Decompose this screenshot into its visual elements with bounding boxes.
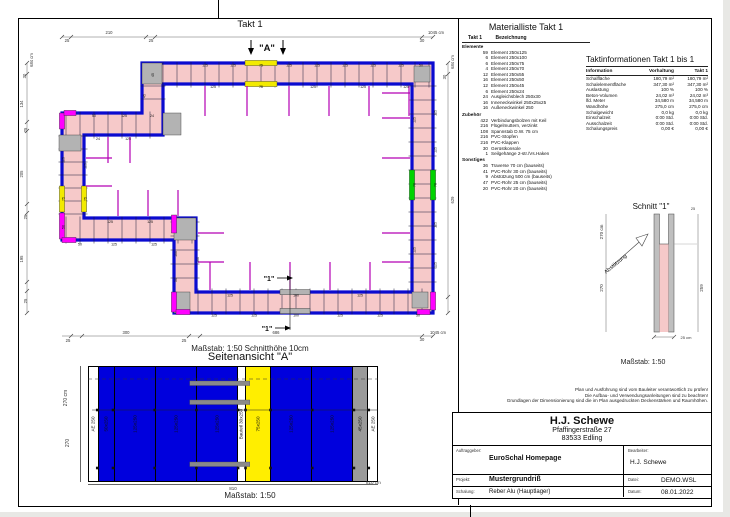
schnitt-scale: Maßstab: 1:50 xyxy=(621,359,666,366)
side-panel-label: 125x250 xyxy=(173,415,178,433)
plan-text: 125 xyxy=(357,293,363,297)
side-panel: 50x250 xyxy=(99,367,115,481)
wall-element xyxy=(174,218,196,240)
datei-value: DEMO.WSL xyxy=(661,477,696,484)
plan-text: 134 xyxy=(19,100,24,108)
plan-text: 125 xyxy=(125,137,131,141)
plan-text: 45 xyxy=(151,73,155,77)
plan-text: 50 xyxy=(78,242,82,246)
material-row: 16Außeneckwinkel 250 xyxy=(462,105,590,111)
wall-element xyxy=(412,292,428,308)
plan-text: 50 xyxy=(92,114,96,118)
brace-label: Abstützung xyxy=(603,253,628,275)
plan-text: 45 xyxy=(142,94,146,98)
takt-info-header: Information Vorhaltung Takt 1 xyxy=(586,68,708,76)
material-list-col1: Takt 1 xyxy=(468,35,482,41)
plan-text: 684 cm xyxy=(450,55,455,69)
plan-text: 125 xyxy=(286,63,292,67)
plan-text: 125 xyxy=(251,313,257,317)
plan-text: 25 xyxy=(23,214,28,219)
section-a-marker: "A" xyxy=(259,43,275,54)
plan-text: 125 xyxy=(210,85,216,89)
plan-text: 125 xyxy=(227,293,233,297)
marker-a-arrow-head xyxy=(280,48,286,55)
material-list-header: Takt 1 Bezeichnung xyxy=(462,35,590,43)
material-list-title: Materialliste Takt 1 xyxy=(462,22,590,32)
wall-element xyxy=(430,292,435,310)
side-panel-label: 125x250 xyxy=(288,415,293,433)
takt-info-table: Taktinformationen Takt 1 bis 1 Informati… xyxy=(586,55,708,132)
plan-text: 125 xyxy=(412,117,416,123)
wall-element xyxy=(62,237,76,242)
material-qty: 20 xyxy=(462,186,488,192)
side-view-dim-line-left xyxy=(80,366,81,482)
side-panel-label: AE 250 xyxy=(91,416,96,431)
schnitt-dim-25: 25 xyxy=(691,207,695,211)
disclaimer-text: Plan und Ausführung sind vom Bauleiter v… xyxy=(458,387,708,404)
plan-text: 125 xyxy=(337,313,343,317)
datum-value: 08.01.2022 xyxy=(661,489,694,496)
plan-text: 24 xyxy=(96,137,100,141)
marker-a-arrow-head xyxy=(248,48,254,55)
section-1-marker-top: "1" xyxy=(264,276,275,283)
plan-text: 686 xyxy=(273,330,281,335)
plan-text: 100 xyxy=(293,313,299,317)
wall-element xyxy=(414,66,430,82)
plan-text: 125 xyxy=(433,110,437,116)
brace-arrow-head xyxy=(636,234,648,246)
disclaimer-line: Grundlagen der Dimensionierung sind die … xyxy=(458,398,708,404)
side-panel: Bauteil 30x250 xyxy=(238,367,246,481)
plan-text: 125 xyxy=(202,63,208,67)
plan-text: 24 xyxy=(150,114,154,118)
side-panel: 125x250 xyxy=(197,367,238,481)
side-panel-label: AE 250 xyxy=(370,416,375,431)
material-name: Außeneckwinkel 250 xyxy=(491,105,590,111)
wall-element xyxy=(64,110,76,115)
takt-info-body: Schalfläche180,79 m²180,79 m²Schalelemen… xyxy=(586,76,708,132)
material-list: Materialliste Takt 1 Takt 1 Bezeichnung … xyxy=(462,22,590,191)
takt-info-col-vorhaltung: Vorhaltung xyxy=(634,69,674,74)
schalung-label: Schalung: xyxy=(456,489,475,494)
plan-text: 125 xyxy=(147,220,153,224)
wall-element xyxy=(171,292,176,312)
plan-text: 75 xyxy=(61,197,65,201)
plan-text: 50 xyxy=(61,225,65,229)
side-panel: AE 250 xyxy=(89,367,99,481)
plan-text: 30 xyxy=(442,74,447,79)
side-panel: 125x250 xyxy=(115,367,156,481)
side-view-dim-height2: 270 xyxy=(65,413,71,473)
plan-text: 684 cm xyxy=(29,53,34,67)
material-name: Seilgehänge 2-str./Vs.Haken xyxy=(491,151,590,157)
takt-info-cell: Schalungspreis xyxy=(586,126,634,132)
takt-info-cell: 0,00 € xyxy=(674,126,708,132)
plan-text: 300 xyxy=(123,330,131,335)
plan-text: 125 xyxy=(412,247,416,253)
plan-text: 125 xyxy=(121,114,127,118)
plan-text: 125 xyxy=(342,63,348,67)
material-row: 20PVC-Rohr 20 cm (bauseits) xyxy=(462,186,590,192)
takt-info-title: Taktinformationen Takt 1 bis 1 xyxy=(586,55,708,67)
plan-text: 30 xyxy=(420,38,425,43)
plan-text: 75 xyxy=(259,85,263,89)
plan-text: 70 xyxy=(433,183,437,187)
title-block-grid: Auftraggeber: EuroSchal Homepage Bearbei… xyxy=(453,446,711,497)
bearbeiter-value: H.J. Schewe xyxy=(630,459,667,466)
side-view-panels: AE 25050x250125x250125x250125x250Bauteil… xyxy=(88,366,378,482)
schnitt-dim-25cm: 25 cm xyxy=(681,335,693,340)
side-panel-label: 125x250 xyxy=(329,415,334,433)
plan-text: 75 xyxy=(83,197,87,201)
plan-text: 125 xyxy=(310,85,316,89)
plan-text: 205 xyxy=(19,170,24,178)
schalung-value: Reber Alu (Hauptlager) xyxy=(489,489,550,495)
plan-text: 30 xyxy=(420,337,425,342)
plan-text: 125 xyxy=(314,63,320,67)
schnitt-concrete xyxy=(660,244,669,332)
plan-text: 125 xyxy=(230,63,236,67)
wall-element xyxy=(176,309,190,314)
schnitt-dim-270cm: 270 cm xyxy=(599,224,604,239)
title-block-company-section: H.J. Schewe Pfaffingerstraße 27 83533 Ed… xyxy=(453,413,711,446)
plan-text: 75 xyxy=(259,63,263,67)
plan-text: 210 xyxy=(106,30,114,35)
plan-text: 25 xyxy=(65,38,70,43)
plan-text: 50 xyxy=(416,313,420,317)
material-qty: 1 xyxy=(462,151,488,157)
section-view-schnitt: Schnitt "1" Abstützung 270 cm 270 25 259… xyxy=(596,196,714,371)
schnitt-dim-270: 270 xyxy=(599,284,604,292)
takt-info-col-information: Information xyxy=(586,69,634,74)
plan-text: 125 xyxy=(433,222,437,228)
title-block: H.J. Schewe Pfaffingerstraße 27 83533 Ed… xyxy=(452,412,712,499)
plan-text: 125 xyxy=(403,85,409,89)
projekt-label: Projekt: xyxy=(456,477,470,482)
plan-text: 125 xyxy=(211,313,217,317)
material-row: 1Seilgehänge 2-str./Vs.Haken xyxy=(462,151,590,157)
takt-info-col-takt1: Takt 1 xyxy=(674,69,708,74)
side-view-scale: Maßstab: 1:50 xyxy=(150,491,350,500)
plan-text: 25 xyxy=(66,338,71,343)
company-name: H.J. Schewe xyxy=(453,415,711,427)
plan-text: 125 xyxy=(111,242,117,246)
wall-element xyxy=(171,215,176,233)
side-panel-label: 125x250 xyxy=(214,415,219,433)
company-address1: Pfaffingerstraße 27 xyxy=(453,427,711,435)
plan-text: 125 xyxy=(61,157,65,163)
schnitt-dim-259: 259 xyxy=(699,284,704,292)
side-panel-label: 50x250 xyxy=(104,416,109,431)
plan-text: 50 xyxy=(174,278,178,282)
plan-text: 25 xyxy=(182,338,187,343)
plan-text: 125 xyxy=(433,147,437,153)
plan-text: 70 xyxy=(412,183,416,187)
plan-text: 125 xyxy=(107,220,113,224)
title-block-divider xyxy=(623,446,624,497)
plan-text: 25 xyxy=(23,127,28,132)
title-block-rule xyxy=(453,474,711,475)
plan-text: 1045 cm xyxy=(428,30,445,35)
material-qty: 16 xyxy=(462,105,488,111)
plan-text: 125 xyxy=(83,163,87,169)
projekt-value: Mustergrundriß xyxy=(489,476,541,483)
schnitt-panel-right xyxy=(669,214,675,332)
company-address2: 83533 Edling xyxy=(453,435,711,443)
side-panel: 125x250 xyxy=(271,367,312,481)
side-panel: 75x250 xyxy=(246,367,271,481)
side-panel: 45x250 xyxy=(353,367,368,481)
plan-text: 100 xyxy=(174,251,178,257)
floor-plan: 2521025301045 cm684 cm301342520525195256… xyxy=(18,18,460,348)
side-view-dim-width-cm: 810 cm xyxy=(366,480,381,485)
plan-text: 125 xyxy=(151,242,157,246)
plan-text: 30 xyxy=(22,73,27,78)
plan-text: 50 xyxy=(419,63,423,67)
side-panel: AE 250 xyxy=(368,367,377,481)
wall-element xyxy=(163,113,181,135)
side-view-dim-line-bottom xyxy=(88,484,378,485)
takt-info-cell: 0,00 € xyxy=(634,126,674,132)
side-panel-label: Bauteil 30x250 xyxy=(239,409,244,439)
plan-text: 125 xyxy=(377,313,383,317)
plan-text: 125 xyxy=(360,85,366,89)
side-panel: 125x250 xyxy=(156,367,197,481)
plan-text: 125 xyxy=(433,262,437,268)
material-name: PVC-Rohr 20 cm (bauseits) xyxy=(491,186,590,192)
title-block-rule xyxy=(453,486,711,487)
plan-text: 195 xyxy=(19,255,24,263)
auftraggeber-label: Auftraggeber: xyxy=(456,448,481,453)
material-list-body: Elemente59Element 250x1256Element 250x10… xyxy=(462,45,590,192)
side-panel-label: 45x250 xyxy=(358,416,363,431)
datum-label: Datum: xyxy=(628,489,642,494)
schnitt-panel-left xyxy=(654,214,660,332)
side-panel: 125x250 xyxy=(312,367,353,481)
plan-text: 125 xyxy=(370,63,376,67)
section-1-marker-bottom: "1" xyxy=(262,326,273,333)
schnitt-title: Schnitt "1" xyxy=(633,202,670,211)
drawing-sheet: Takt 1 2521025301045 cm684 cm30134252052… xyxy=(0,0,723,512)
takt-info-row: Schalungspreis0,00 €0,00 € xyxy=(586,126,708,132)
plan-text: 125 xyxy=(398,63,404,67)
auftraggeber-value: EuroSchal Homepage xyxy=(489,455,561,462)
plan-text: 100 xyxy=(196,257,200,263)
datei-label: Datei: xyxy=(628,477,639,482)
bearbeiter-label: Bearbeiter: xyxy=(628,448,648,453)
plan-text: 1045 cm xyxy=(430,330,447,335)
material-list-col2: Bezeichnung xyxy=(495,35,526,41)
side-panel-label: 125x250 xyxy=(132,415,137,433)
print-mark-top xyxy=(218,0,219,18)
plan-text: 629 xyxy=(450,196,455,204)
side-panel-label: 75x250 xyxy=(255,416,260,431)
plan-text: 100 xyxy=(293,293,299,297)
wall-element xyxy=(59,135,81,151)
plan-text: 25 xyxy=(149,38,154,43)
plan-text: 25 xyxy=(23,298,28,303)
side-view-title: Seitenansicht "A" xyxy=(130,351,370,363)
